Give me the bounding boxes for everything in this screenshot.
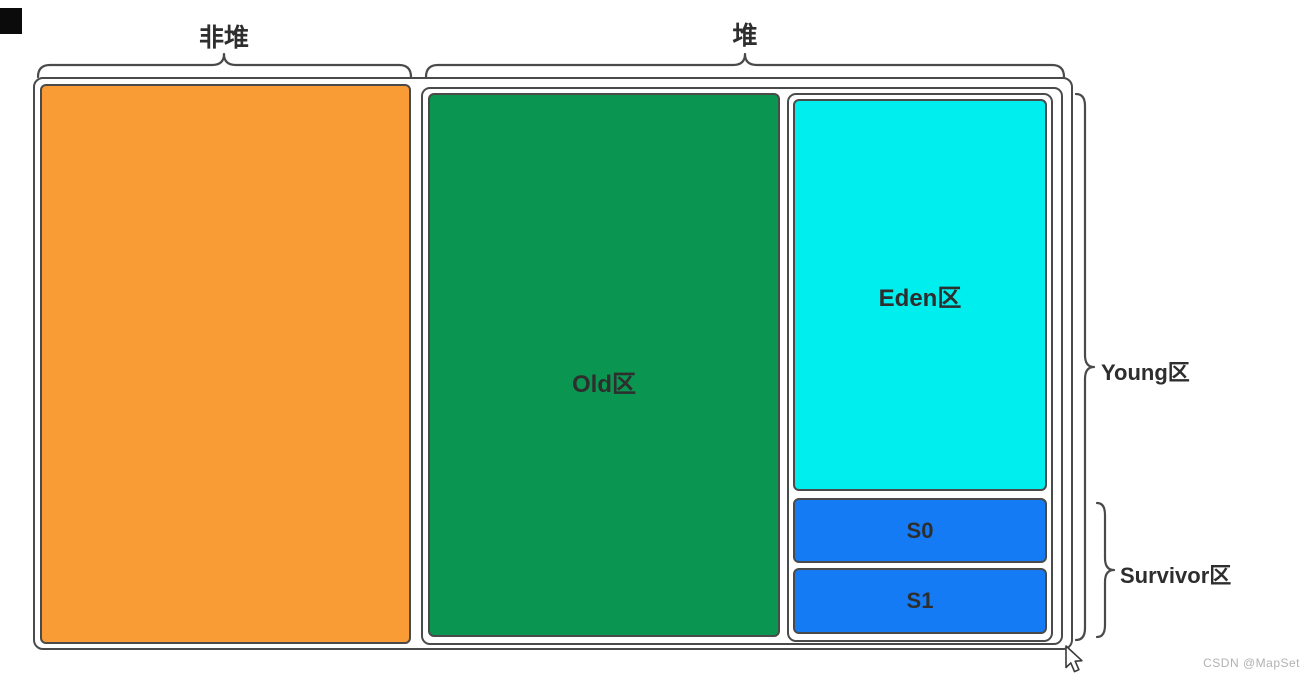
jvm-memory-diagram: 非堆 堆 Old区 Eden区 S0 S1 Young区 Survivor区 C… <box>0 0 1309 681</box>
corner-mark <box>0 8 22 34</box>
heap-label: 堆 <box>645 16 845 52</box>
survivor0-region: S0 <box>793 498 1047 563</box>
old-generation-region: Old区 <box>428 93 780 637</box>
eden-region: Eden区 <box>793 99 1047 491</box>
young-generation-label: Young区 <box>1101 355 1190 387</box>
non-heap-brace <box>38 54 411 77</box>
old-region-label: Old区 <box>572 364 636 399</box>
survivor0-label: S0 <box>907 518 934 544</box>
survivor1-label: S1 <box>907 588 934 614</box>
non-heap-label: 非堆 <box>124 18 324 54</box>
young-brace <box>1076 94 1094 640</box>
survivor1-region: S1 <box>793 568 1047 634</box>
survivor-brace <box>1097 503 1114 637</box>
mouse-cursor-icon <box>1066 646 1082 672</box>
watermark: CSDN @MapSet <box>1130 656 1300 670</box>
survivor-area-label: Survivor区 <box>1120 558 1231 590</box>
eden-region-label: Eden区 <box>879 278 962 313</box>
non-heap-region <box>40 84 411 644</box>
heap-brace <box>426 54 1064 77</box>
